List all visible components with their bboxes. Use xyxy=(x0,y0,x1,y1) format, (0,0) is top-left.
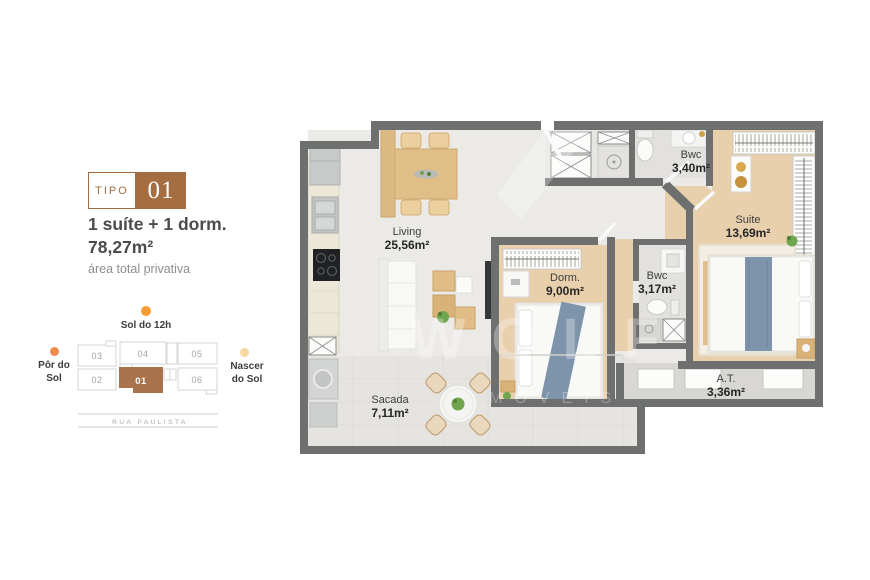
building-keyplan: 03 04 05 02 01 06 RUA PAULISTA xyxy=(70,337,230,437)
utility-area xyxy=(309,337,338,427)
sun-noon-icon xyxy=(141,306,151,316)
pillow xyxy=(799,261,811,297)
wall-left xyxy=(300,141,308,454)
washer-door-icon xyxy=(314,370,332,388)
sofa-back xyxy=(379,259,388,351)
wall-top-right xyxy=(554,121,823,130)
sink-icon xyxy=(683,132,695,144)
unit-06-number: 06 xyxy=(191,375,202,385)
type-badge-label: TIPO xyxy=(88,172,136,209)
table-platter xyxy=(414,170,438,179)
noon-label: Sol do 12h xyxy=(108,319,184,332)
table-greens-icon xyxy=(420,171,424,175)
unit-05-number: 05 xyxy=(191,349,202,359)
sink-basin-1 xyxy=(315,201,335,214)
vase-icon xyxy=(699,131,705,137)
louver-panel xyxy=(763,369,803,389)
wall-bwc1-bottom xyxy=(545,178,663,186)
wall-suite-left xyxy=(686,207,693,361)
watermark-line1: WOLF xyxy=(411,307,686,372)
wall-dorm-top xyxy=(491,237,598,245)
louver-panel xyxy=(638,369,674,389)
pillow xyxy=(799,301,811,337)
core-bottom-a xyxy=(164,369,170,380)
unit-01-number: 01 xyxy=(135,376,147,387)
type-badge: TIPO 01 xyxy=(88,172,186,209)
table-plant-icon xyxy=(452,398,465,411)
unit-04-number: 04 xyxy=(137,349,148,359)
wall-suite-bottom xyxy=(678,361,823,369)
label-living-name: Living xyxy=(393,226,422,238)
wall-top-left xyxy=(371,121,541,130)
label-at-name: A.T. xyxy=(717,373,736,385)
unit-02-number: 02 xyxy=(91,375,102,385)
basket-icon xyxy=(736,162,746,172)
wall-at-bottom xyxy=(616,399,823,407)
kitchen xyxy=(308,143,340,353)
label-suite-name: Suite xyxy=(735,214,760,226)
wall-bwc2-top xyxy=(633,239,686,245)
floor-plan: WOLF IMÓVEIS Living 25,56m² Bwc 3,40m² S… xyxy=(293,111,828,466)
label-dorm-name: Dorm. xyxy=(550,272,580,284)
toilet-icon xyxy=(637,139,653,161)
toilet-tank xyxy=(637,130,653,138)
basket-icon xyxy=(735,176,747,188)
label-bwc1-area: 3,40m² xyxy=(672,161,710,175)
unit-summary: 1 suíte + 1 dorm. 78,27m² xyxy=(88,213,227,259)
sideboard xyxy=(381,129,395,217)
dining-area xyxy=(381,129,457,217)
label-bwc1-name: Bwc xyxy=(681,149,702,161)
watermark-line2: IMÓVEIS xyxy=(473,388,624,407)
label-sacada-name: Sacada xyxy=(371,394,409,406)
label-dorm-area: 9,00m² xyxy=(546,284,584,298)
unit-03-notch xyxy=(106,341,116,346)
core-top xyxy=(167,343,177,364)
label-suite-area: 13,69m² xyxy=(726,226,771,240)
wall-bwc1-right xyxy=(706,121,713,186)
core-bottom-b xyxy=(170,369,176,380)
unit-06-notch xyxy=(206,390,217,394)
label-bwc2-area: 3,17m² xyxy=(638,282,676,296)
sun-east-icon xyxy=(240,348,249,357)
sink-basin-2 xyxy=(315,217,335,230)
unit-03-number: 03 xyxy=(91,351,102,361)
street-name: RUA PAULISTA xyxy=(112,419,188,426)
sun-west-icon xyxy=(50,347,59,356)
cooktop xyxy=(313,249,340,281)
label-living-area: 25,56m² xyxy=(385,238,430,252)
type-badge-number: 01 xyxy=(136,172,186,209)
summary-line-1: 1 suíte + 1 dorm. xyxy=(88,213,227,236)
fridge xyxy=(310,143,340,185)
laundry-tub xyxy=(310,403,337,427)
label-at-area: 3,36m² xyxy=(707,385,745,399)
wall-bottom xyxy=(300,446,645,454)
label-bwc2-name: Bwc xyxy=(647,270,668,282)
label-sacada-area: 7,11m² xyxy=(371,406,408,420)
summary-caption: área total privativa xyxy=(88,262,190,276)
summary-area: 78,27m² xyxy=(88,236,227,259)
